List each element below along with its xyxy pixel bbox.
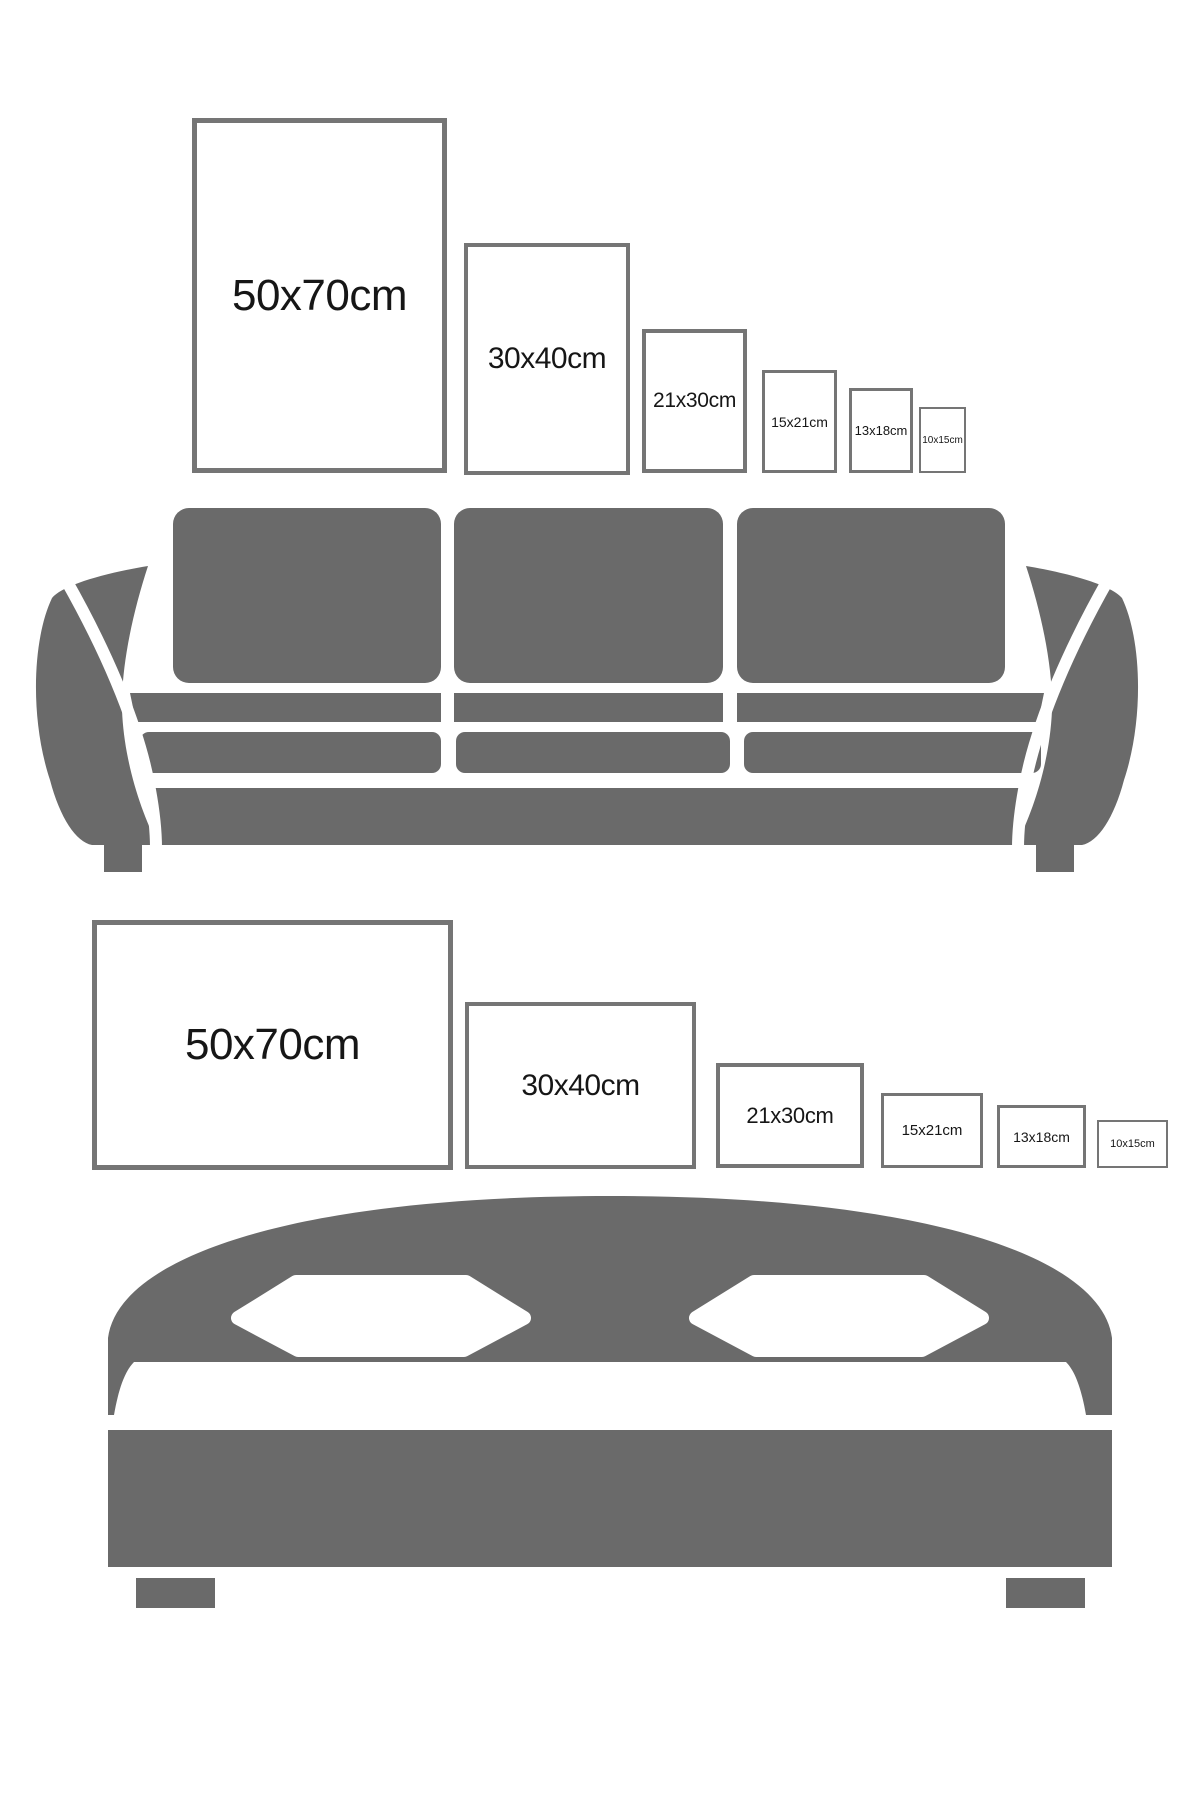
frame-portrait-15x21: 15x21cm [762, 370, 837, 473]
frame-size-label: 21x30cm [746, 1103, 833, 1129]
frame-size-label: 15x21cm [902, 1122, 963, 1139]
frame-size-label: 50x70cm [232, 271, 407, 321]
sofa-icon [36, 508, 1138, 872]
size-guide-infographic: 50x70cm 30x40cm 21x30cm 15x21cm 13x18cm … [0, 0, 1200, 1800]
frame-size-label: 21x30cm [653, 389, 736, 413]
frame-size-label: 13x18cm [1013, 1129, 1070, 1145]
frame-portrait-50x70: 50x70cm [192, 118, 447, 473]
frame-portrait-13x18: 13x18cm [849, 388, 913, 473]
frame-size-label: 10x15cm [922, 435, 963, 446]
frame-portrait-10x15: 10x15cm [919, 407, 966, 473]
frame-portrait-30x40: 30x40cm [464, 243, 630, 475]
frame-landscape-30x40: 30x40cm [465, 1002, 696, 1169]
frame-size-label: 30x40cm [521, 1069, 639, 1103]
frame-landscape-21x30: 21x30cm [716, 1063, 864, 1168]
frame-landscape-13x18: 13x18cm [997, 1105, 1086, 1168]
frame-landscape-10x15: 10x15cm [1097, 1120, 1168, 1168]
bed-icon [108, 1196, 1112, 1608]
frame-size-label: 13x18cm [855, 423, 908, 438]
frame-landscape-50x70: 50x70cm [92, 920, 453, 1170]
frame-portrait-21x30: 21x30cm [642, 329, 747, 473]
frame-size-label: 50x70cm [185, 1020, 360, 1070]
frame-size-label: 15x21cm [771, 414, 828, 430]
frame-size-label: 10x15cm [1110, 1138, 1155, 1150]
frame-size-label: 30x40cm [488, 342, 606, 376]
frame-landscape-15x21: 15x21cm [881, 1093, 983, 1168]
